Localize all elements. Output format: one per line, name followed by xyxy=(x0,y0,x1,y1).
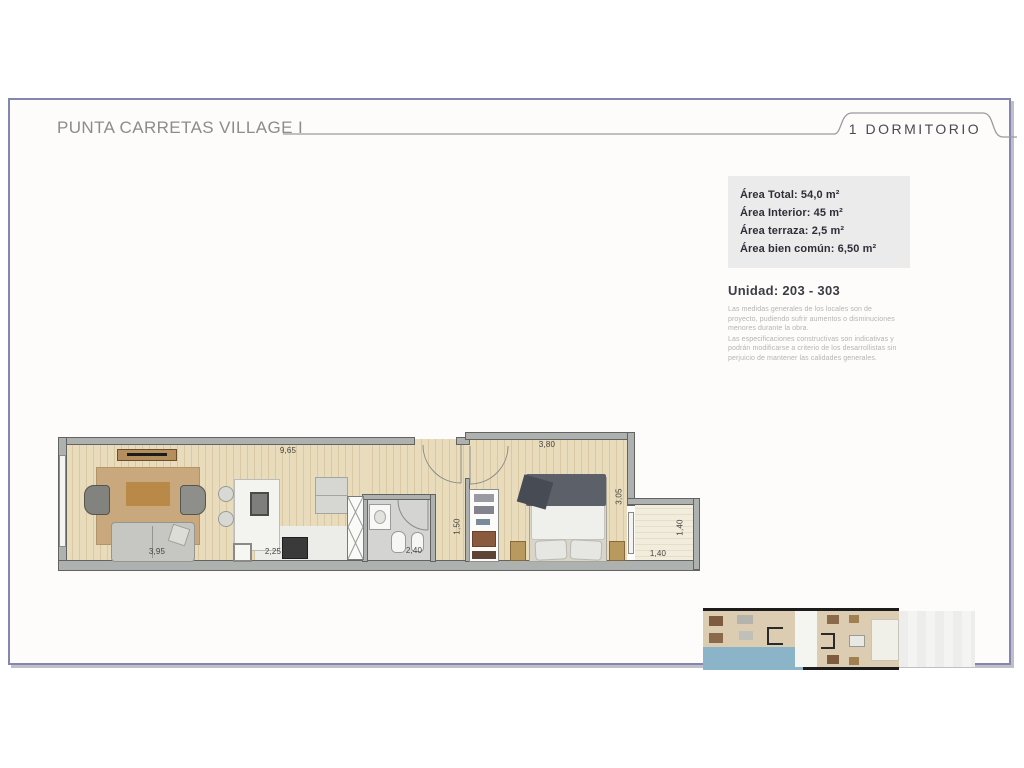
dim-terrace-width: 1,40 xyxy=(643,549,673,558)
brochure-page: PUNTA CARRETAS VILLAGE I 1 DORMITORIO Ár… xyxy=(8,98,1011,665)
dim-hallway: 1,50 xyxy=(453,512,462,542)
key-plan-core xyxy=(871,619,899,661)
key-plan-furniture-8 xyxy=(849,615,859,623)
key-plan-drawn-section xyxy=(703,608,899,670)
dim-living-width: 3,95 xyxy=(142,547,172,556)
key-plan-furniture-1 xyxy=(709,616,723,626)
key-plan-furniture-2 xyxy=(709,633,723,643)
key-plan-furniture-4 xyxy=(739,631,753,640)
dim-bedroom-depth: 3,05 xyxy=(615,482,624,512)
unit-number: Unidad: 203 - 303 xyxy=(728,283,840,298)
area-interior: Área Interior: 45 m² xyxy=(740,204,898,222)
key-plan-furniture-3 xyxy=(737,615,753,624)
key-plan-furniture-6 xyxy=(827,655,839,664)
dim-bathroom-width: 2,40 xyxy=(399,546,429,555)
key-plan-wall-1 xyxy=(767,627,783,645)
key-plan-furniture-9 xyxy=(849,657,859,665)
key-plan-wall-2 xyxy=(821,633,835,649)
disclaimer-paragraph-1: Las medidas generales de los locales son… xyxy=(728,305,900,334)
key-plan-corridor xyxy=(795,611,817,667)
key-plan-pool xyxy=(703,647,803,670)
key-plan-faded-section xyxy=(899,611,975,667)
disclaimer-paragraph-2: Las especificaciones constructivas son i… xyxy=(728,335,900,364)
key-plan-furniture-7 xyxy=(849,635,865,647)
dim-living-length: 9,65 xyxy=(273,446,303,455)
building-key-plan xyxy=(703,608,975,670)
dim-kitchen: 2,25 xyxy=(258,547,288,556)
dim-terrace-depth: 1,40 xyxy=(676,513,685,543)
key-plan-furniture-5 xyxy=(827,615,839,624)
area-bien-comun: Área bien común: 6,50 m² xyxy=(740,240,898,258)
area-info-box: Área Total: 54,0 m² Área Interior: 45 m²… xyxy=(728,176,910,268)
area-total: Área Total: 54,0 m² xyxy=(740,186,898,204)
dim-bedroom-width: 3,80 xyxy=(532,440,562,449)
area-terraza: Área terraza: 2,5 m² xyxy=(740,222,898,240)
disclaimer-text: Las medidas generales de los locales son… xyxy=(728,305,900,364)
floor-plan: 9,65 3,80 3,95 2,25 2,40 1,50 3,05 1,40 … xyxy=(58,430,700,572)
unit-type-tab: 1 DORMITORIO xyxy=(840,121,990,137)
